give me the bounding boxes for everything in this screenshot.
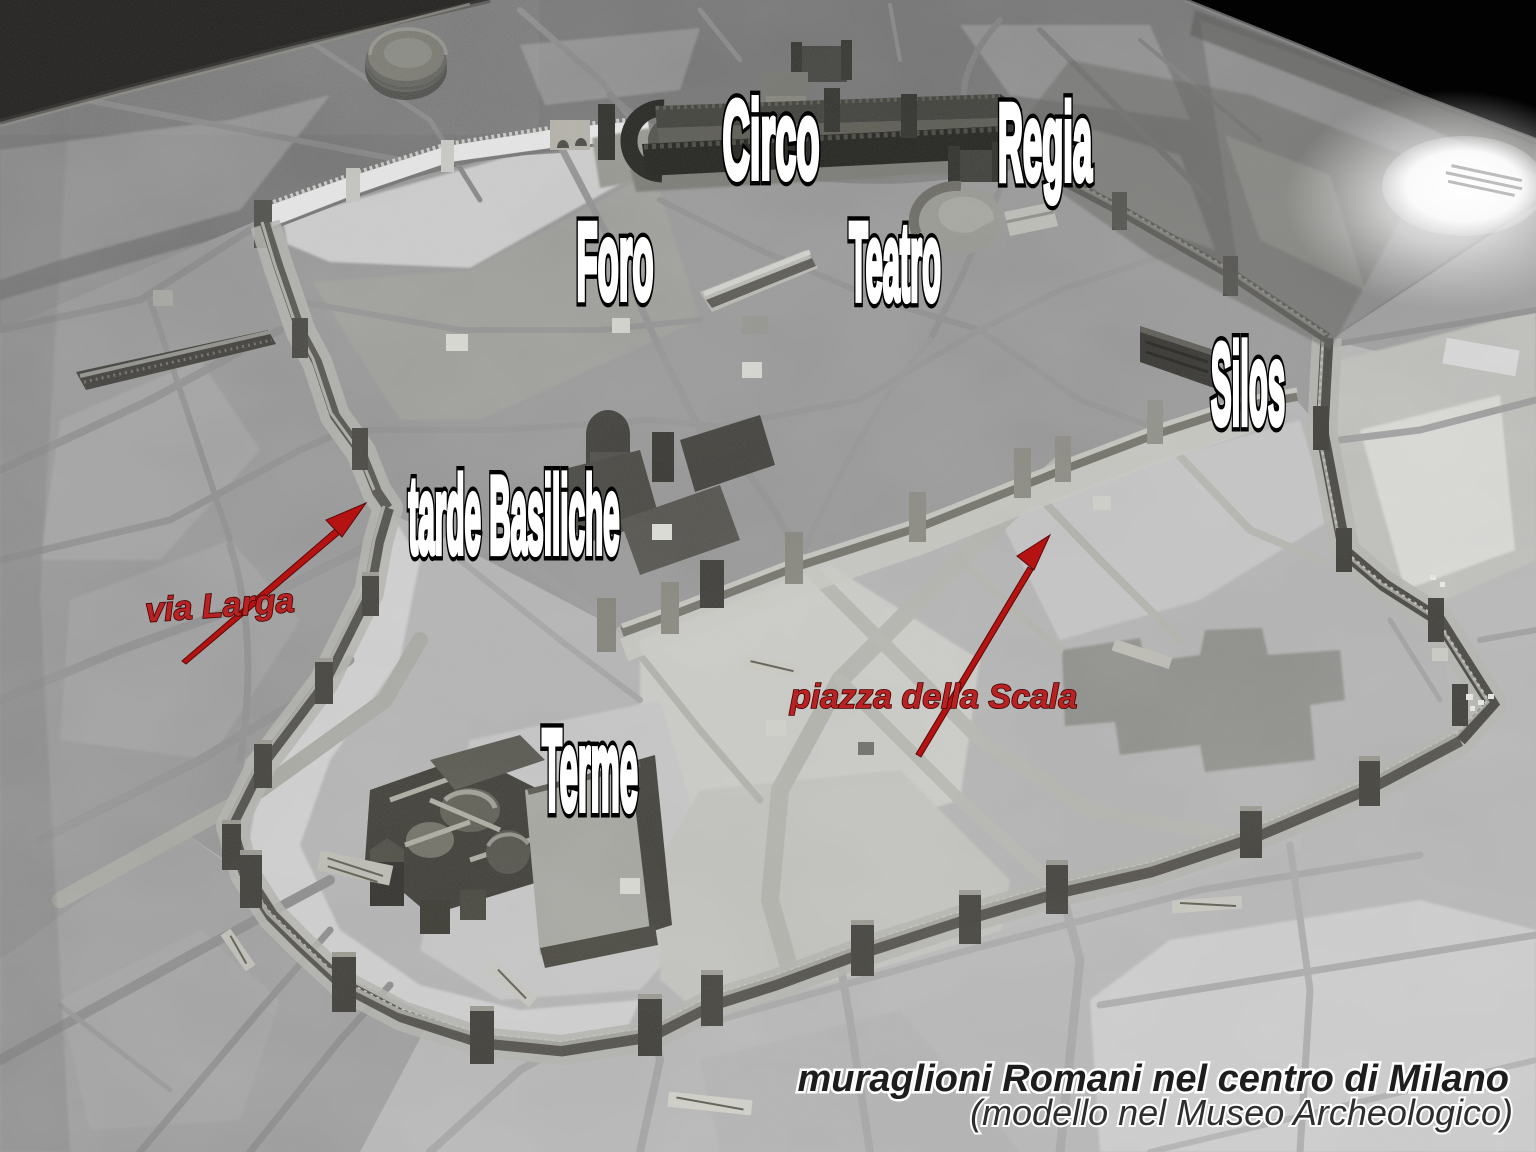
svg-text:Foro: Foro	[577, 201, 654, 324]
svg-text:Silos: Silos	[1211, 320, 1285, 448]
svg-text:Terme: Terme	[542, 705, 638, 834]
svg-text:Teatro: Teatro	[849, 202, 941, 325]
svg-text:Regia: Regia	[998, 82, 1093, 205]
svg-text:Circo: Circo	[723, 80, 820, 202]
svg-text:tarde Basiliche: tarde Basiliche	[408, 455, 619, 578]
svg-text:(modello nel Museo Archeologic: (modello nel Museo Archeologico)	[970, 1092, 1513, 1133]
svg-text:piazza della Scala: piazza della Scala	[789, 678, 1077, 716]
